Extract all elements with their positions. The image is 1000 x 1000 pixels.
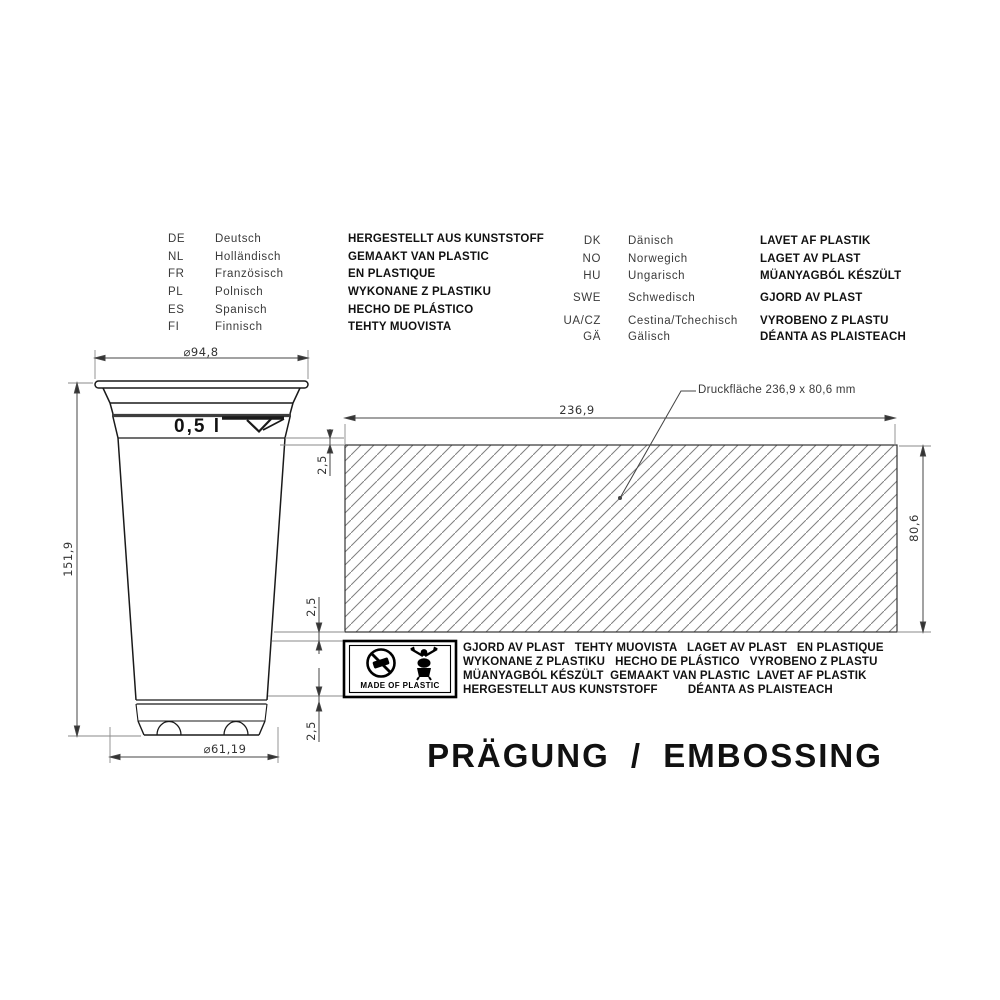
dim-top-diameter: ⌀94,8: [161, 345, 241, 359]
embossing-line: MÜANYAGBÓL KÉSZÜLT GEMAAKT VAN PLASTIC L…: [463, 669, 867, 683]
lang-text: MÜANYAGBÓL KÉSZÜLT: [760, 270, 901, 282]
lang-text: HERGESTELLT AUS KUNSTSTOFF: [348, 233, 544, 245]
page-title: PRÄGUNG / EMBOSSING: [250, 737, 1000, 775]
lang-text: VYROBENO Z PLASTU: [760, 315, 889, 327]
lang-code: ES: [168, 304, 185, 316]
lang-text: EN PLASTIQUE: [348, 268, 435, 280]
lang-text: HECHO DE PLÁSTICO: [348, 304, 473, 316]
technical-drawing-sheet: DE Deutsch HERGESTELLT AUS KUNSTSTOFF NL…: [0, 0, 1000, 1000]
lang-text: DÉANTA AS PLAISTEACH: [760, 331, 906, 343]
embossing-line: GJORD AV PLAST TEHTY MUOVISTA LAGET AV P…: [463, 641, 884, 655]
lang-code: UA/CZ: [556, 315, 601, 327]
lang-text: LAVET AF PLASTIK: [760, 235, 871, 247]
dim-print-height: 80,6: [907, 510, 921, 546]
dim-height: 151,9: [61, 539, 75, 579]
lang-code: PL: [168, 286, 183, 298]
lang-text: WYKONANE Z PLASTIKU: [348, 286, 491, 298]
lang-code: FR: [168, 268, 185, 280]
lang-code: SWE: [556, 292, 601, 304]
lang-name: Spanisch: [215, 304, 267, 316]
embossing-line: HERGESTELLT AUS KUNSTSTOFF DÉANTA AS PLA…: [463, 683, 833, 697]
fill-level-arrow-icon: [222, 418, 284, 432]
lang-code: DE: [168, 233, 185, 245]
embossing-line: WYKONANE Z PLASTIKU HECHO DE PLÁSTICO VY…: [463, 655, 878, 669]
lang-name: Dänisch: [628, 235, 674, 247]
made-of-plastic-text: MADE OF PLASTIC: [349, 681, 451, 690]
lang-text: TEHTY MUOVISTA: [348, 321, 451, 333]
volume-label: 0,5 l: [174, 416, 221, 438]
dim-print-width: 236,9: [537, 403, 617, 417]
lang-text: GJORD AV PLAST: [760, 292, 862, 304]
dim-margin-middle: 2,5: [304, 595, 318, 619]
lang-name: Schwedisch: [628, 292, 695, 304]
lang-name: Gälisch: [628, 331, 671, 343]
dim-margin-top: 2,5: [315, 453, 329, 477]
lang-code: HU: [556, 270, 601, 282]
lang-code: NO: [556, 253, 601, 265]
lang-code: NL: [168, 251, 184, 263]
lang-name: Polnisch: [215, 286, 263, 298]
lang-name: Norwegich: [628, 253, 688, 265]
lang-name: Ungarisch: [628, 270, 685, 282]
lang-code: FI: [168, 321, 179, 333]
lang-text: LAGET AV PLAST: [760, 253, 861, 265]
lang-name: Französisch: [215, 268, 284, 280]
print-area-leader-label: Druckfläche 236,9 x 80,6 mm: [698, 384, 856, 396]
lang-name: Cestina/Tchechisch: [628, 315, 738, 327]
lang-text: GEMAAKT VAN PLASTIC: [348, 251, 489, 263]
lang-name: Finnisch: [215, 321, 263, 333]
lang-code: GÄ: [556, 331, 601, 343]
lang-name: Deutsch: [215, 233, 261, 245]
lang-code: DK: [556, 235, 601, 247]
print-area-rect: [345, 445, 897, 632]
lang-name: Holländisch: [215, 251, 281, 263]
drawing-linework: [0, 0, 1000, 1000]
